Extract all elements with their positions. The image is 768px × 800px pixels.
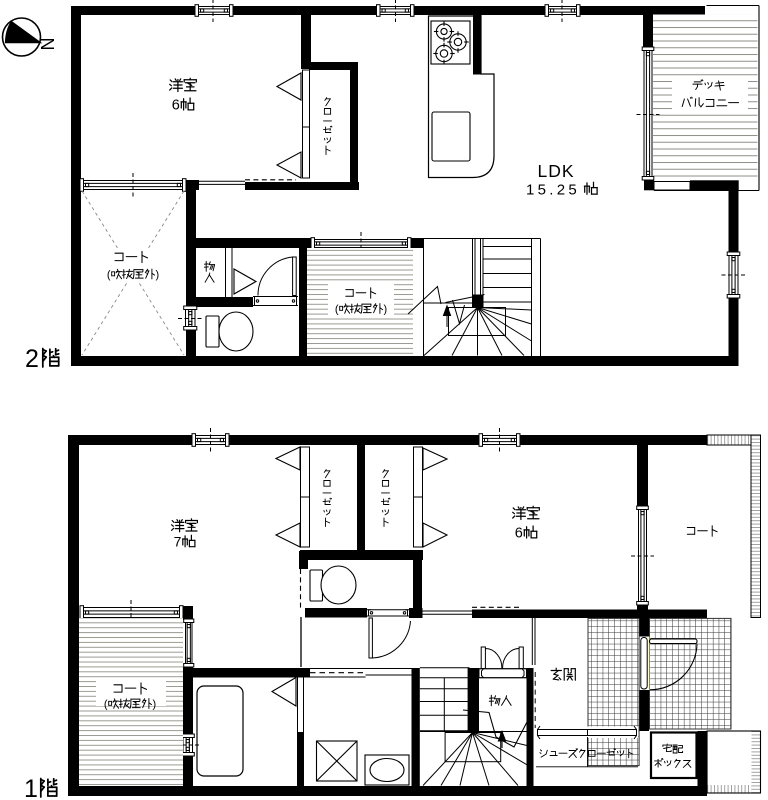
svg-text:LDK: LDK: [537, 161, 574, 181]
svg-text:7: 7: [174, 534, 182, 550]
svg-text:1: 1: [24, 775, 38, 800]
svg-text:(: (: [107, 269, 111, 281]
svg-text:2: 2: [25, 345, 39, 373]
svg-text:6: 6: [515, 526, 523, 542]
svg-text:): ): [152, 698, 156, 710]
svg-text:(: (: [335, 303, 339, 315]
svg-text:(: (: [104, 698, 108, 710]
svg-text:6: 6: [172, 98, 180, 114]
svg-text:): ): [155, 269, 159, 281]
svg-text:N: N: [37, 38, 57, 51]
svg-text:15.25: 15.25: [526, 182, 580, 199]
svg-text:): ): [383, 303, 387, 315]
